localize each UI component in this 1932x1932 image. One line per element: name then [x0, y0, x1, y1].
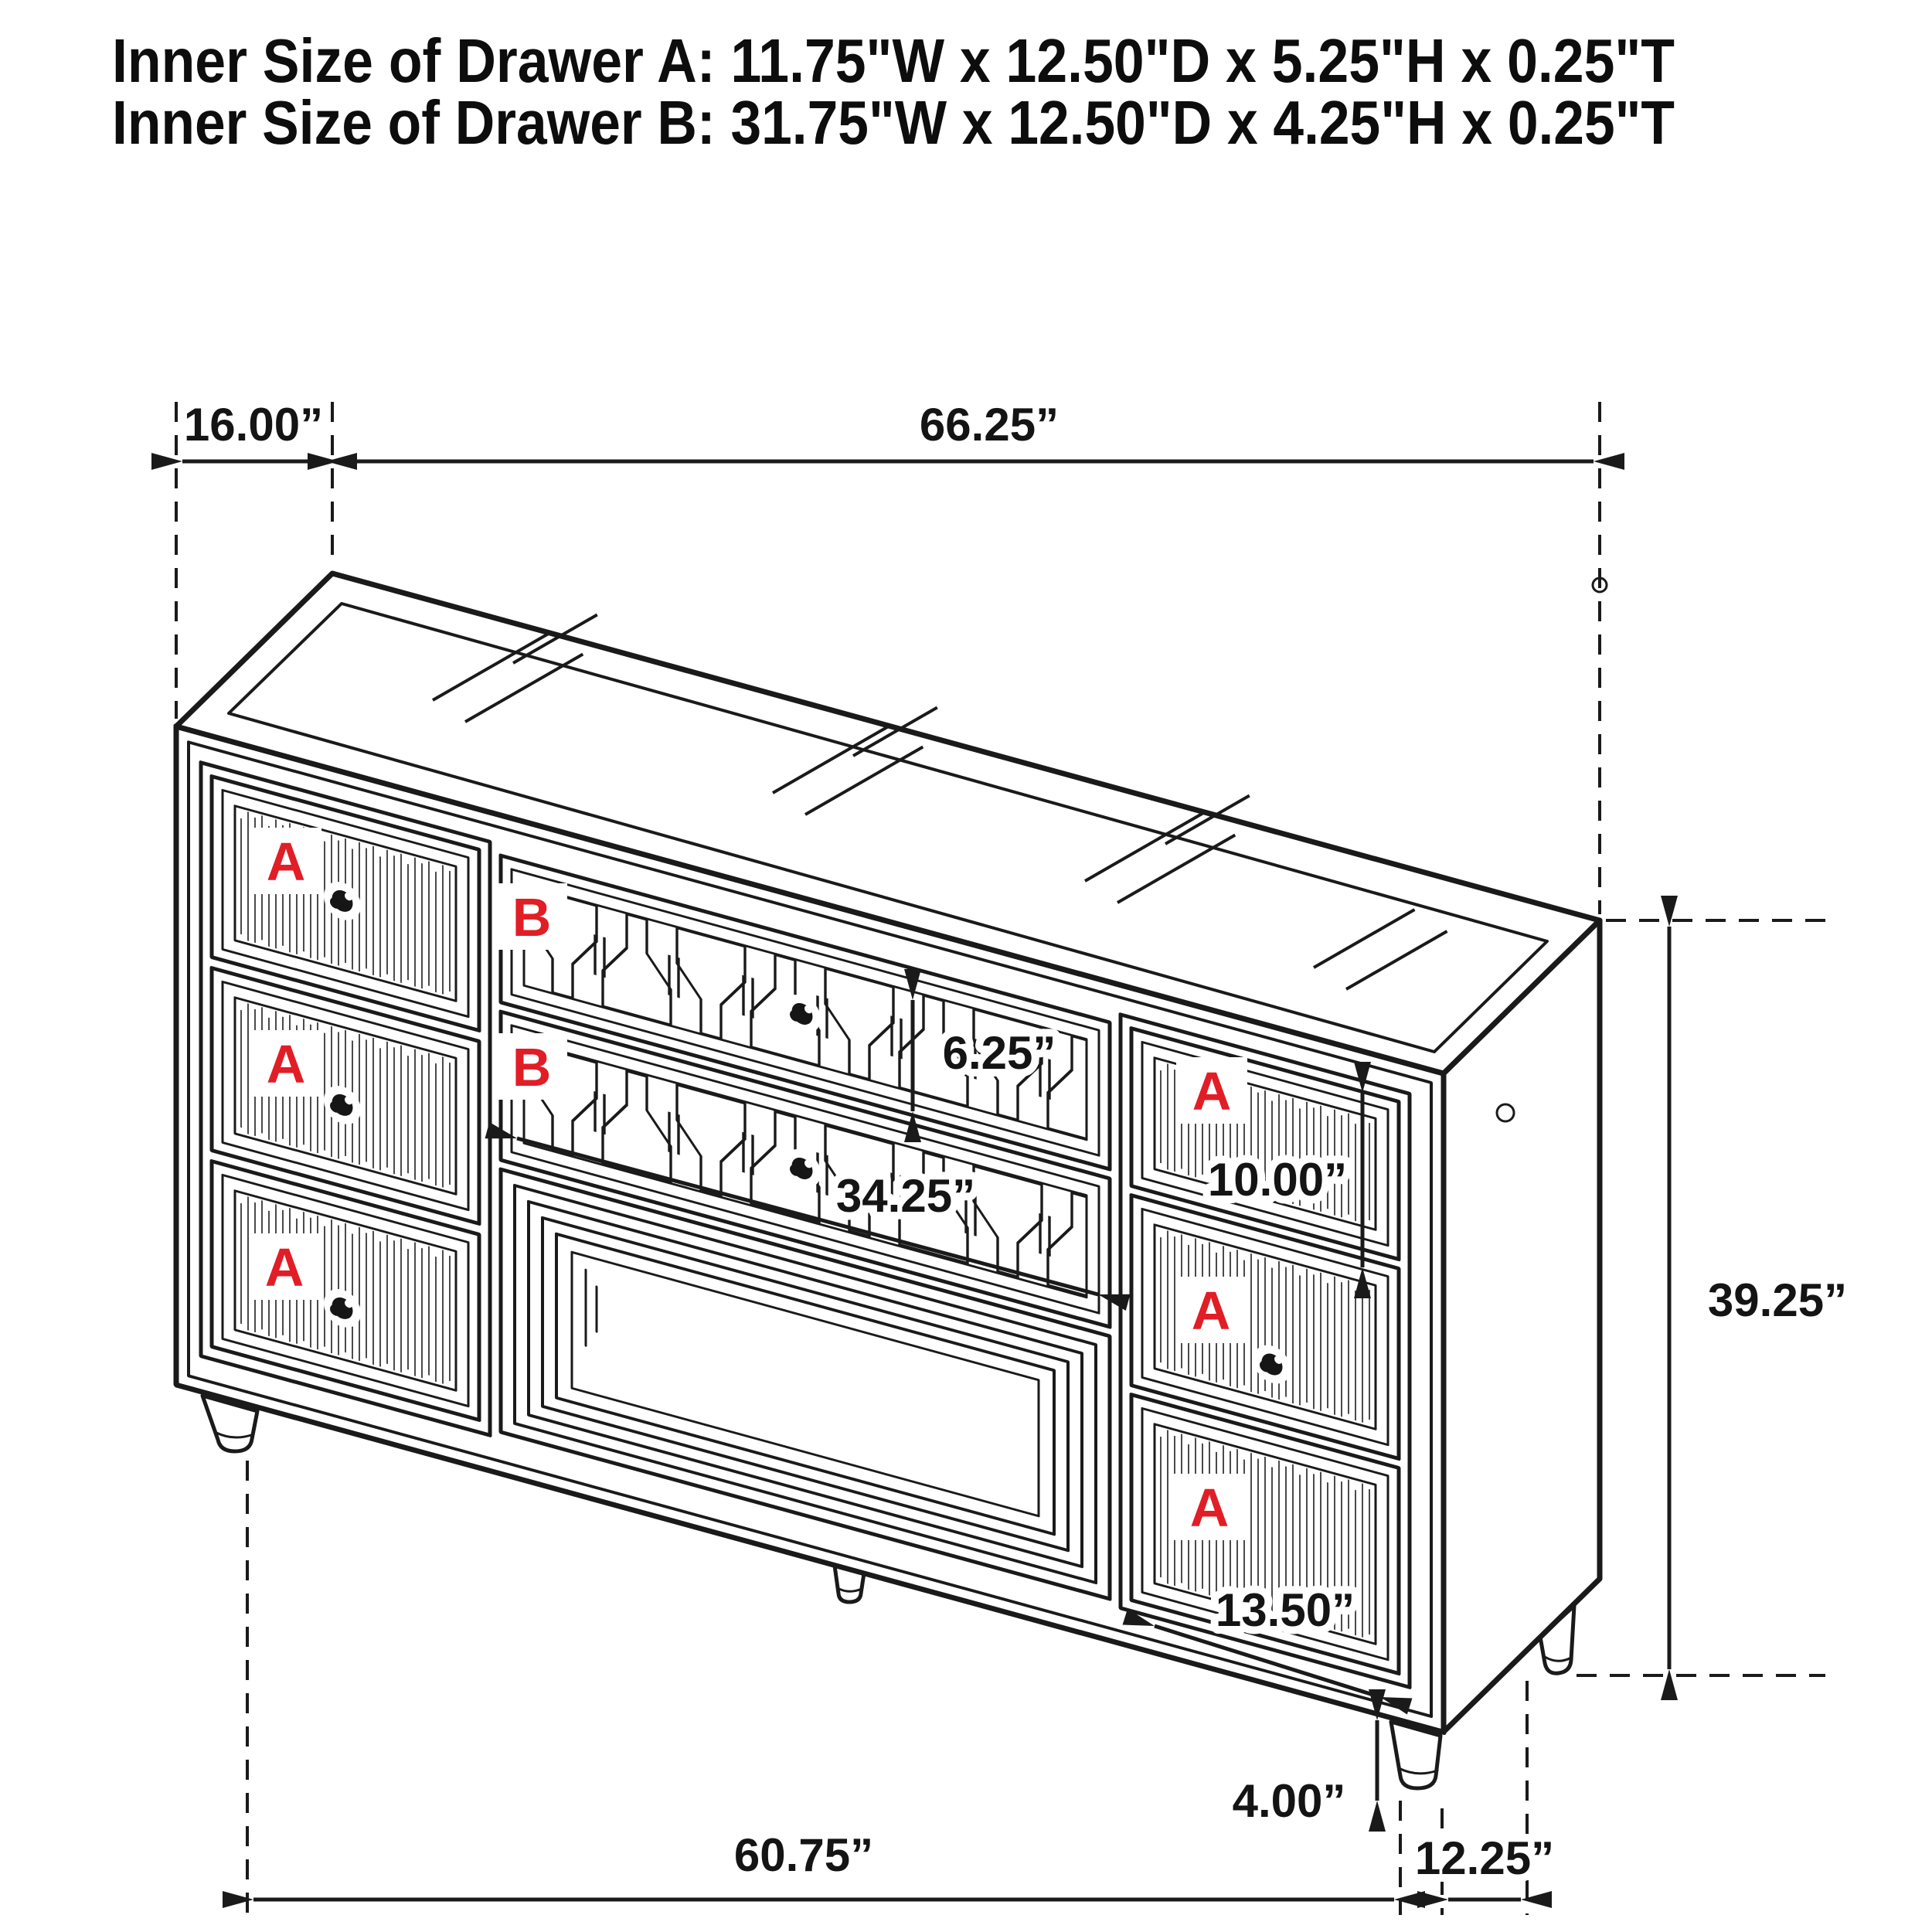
side-panel-hole	[1497, 1104, 1514, 1121]
foot-ring	[838, 1588, 862, 1591]
side-panel-face	[1444, 920, 1600, 1732]
page-title-line-2: Inner Size of Drawer B: 31.75"W x 12.50"…	[112, 88, 1675, 157]
dim-top-depth-label: 16.00”	[184, 399, 323, 451]
middle-column	[501, 855, 1124, 1603]
drawer-knob	[324, 1284, 361, 1332]
foot-back-right	[1540, 1606, 1574, 1673]
label-drawer-a-right-2: A	[1192, 1281, 1231, 1341]
drawer-knob	[784, 990, 821, 1037]
deco-texture	[529, 1044, 1124, 1306]
page-title-line-1: Inner Size of Drawer A: 11.75"W x 12.50"…	[112, 26, 1675, 95]
panel-frame-5	[556, 1234, 1054, 1534]
furniture-dimension-diagram: Inner Size of Drawer A: 11.75"W x 12.50"…	[0, 0, 1932, 1932]
foot-front-right	[1391, 1722, 1440, 1788]
label-drawer-a-left-2: A	[267, 1034, 306, 1094]
foot-ring	[1399, 1768, 1437, 1774]
label-drawer-a-left-3: A	[265, 1237, 304, 1298]
panel-frame-4	[543, 1218, 1068, 1550]
title-block: Inner Size of Drawer A: 11.75"W x 12.50"…	[112, 26, 1675, 157]
dim-leg-height-label: 4.00”	[1233, 1775, 1346, 1827]
diagram-page: Inner Size of Drawer A: 11.75"W x 12.50"…	[0, 0, 1932, 1932]
foot-front-center	[835, 1566, 864, 1602]
dim-top-width-label: 66.25”	[920, 399, 1059, 451]
drawer-knob	[324, 1081, 361, 1128]
deco-texture	[529, 887, 1124, 1149]
drawer-knob	[784, 1145, 821, 1192]
drawer-a-right-2	[1131, 1196, 1399, 1459]
dim-a-drawer-height-label: 10.00”	[1208, 1154, 1347, 1206]
dim-b-drawer-width-label: 34.25”	[836, 1170, 975, 1222]
label-drawer-a-right-1: A	[1192, 1061, 1232, 1121]
label-drawer-b-2: B	[512, 1037, 552, 1097]
foot-ring	[216, 1433, 253, 1437]
label-drawer-a-right-3: A	[1190, 1478, 1230, 1538]
right-side-panel	[1444, 920, 1600, 1732]
foot-ring	[1545, 1657, 1571, 1661]
dim-b-drawer-height-label: 6.25”	[943, 1027, 1056, 1079]
dim-overall-height-label: 39.25”	[1708, 1274, 1847, 1326]
panel-glass	[572, 1252, 1039, 1515]
drawer-knob	[324, 877, 361, 924]
dim-a-drawer-width-label: 13.50”	[1216, 1584, 1355, 1636]
feet	[202, 1396, 1574, 1788]
dim-feet-span-depth-label: 12.25”	[1415, 1832, 1554, 1884]
dim-feet-span-width-label: 60.75”	[734, 1829, 873, 1881]
label-drawer-a-left-1: A	[267, 832, 306, 892]
label-drawer-b-1: B	[512, 887, 552, 947]
drawer-knob	[1253, 1341, 1291, 1388]
